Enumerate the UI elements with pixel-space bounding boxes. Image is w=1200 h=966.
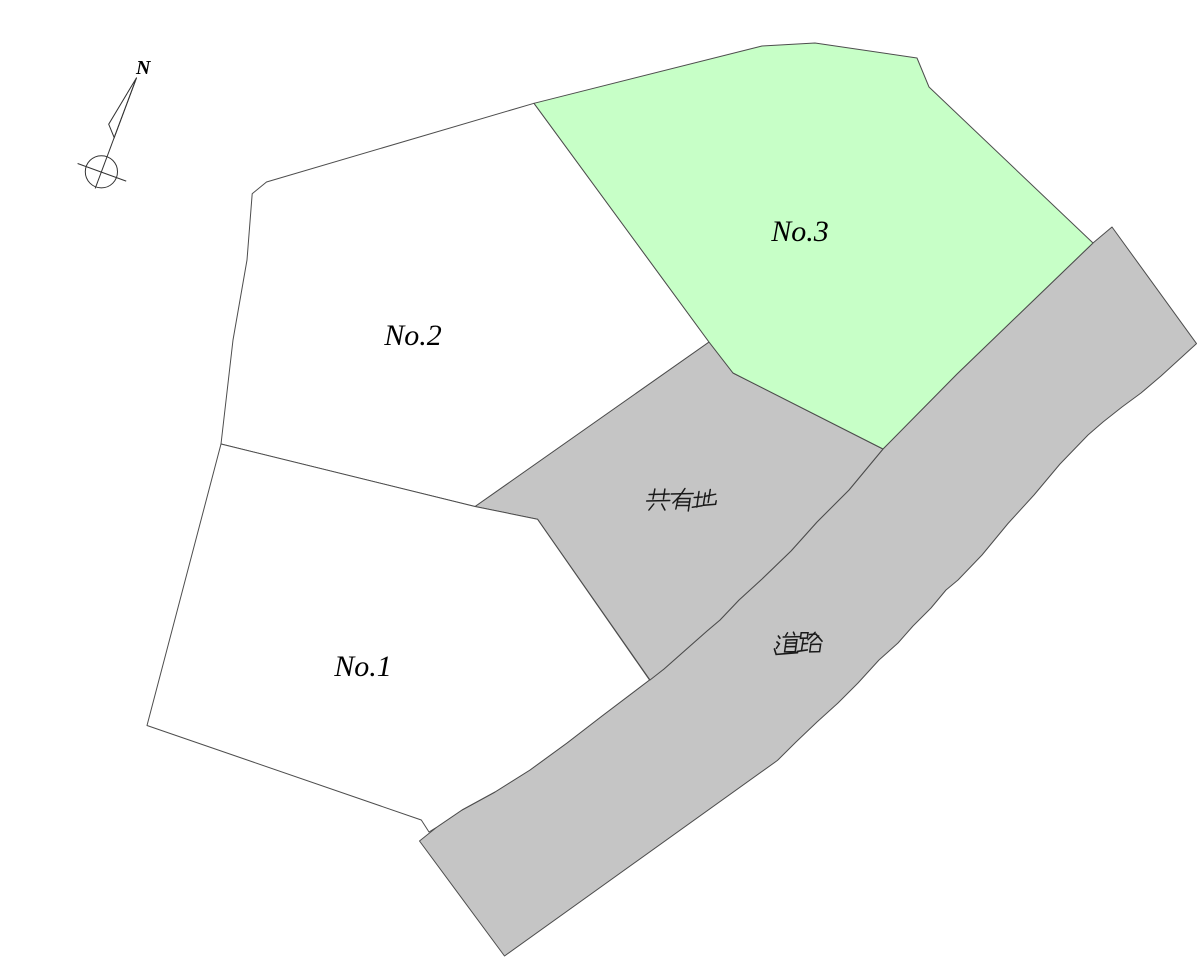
svg-text:No.3: No.3 bbox=[770, 215, 829, 248]
svg-text:No.1: No.1 bbox=[333, 650, 392, 683]
svg-text:N: N bbox=[135, 57, 152, 79]
svg-text:No.2: No.2 bbox=[383, 319, 442, 352]
